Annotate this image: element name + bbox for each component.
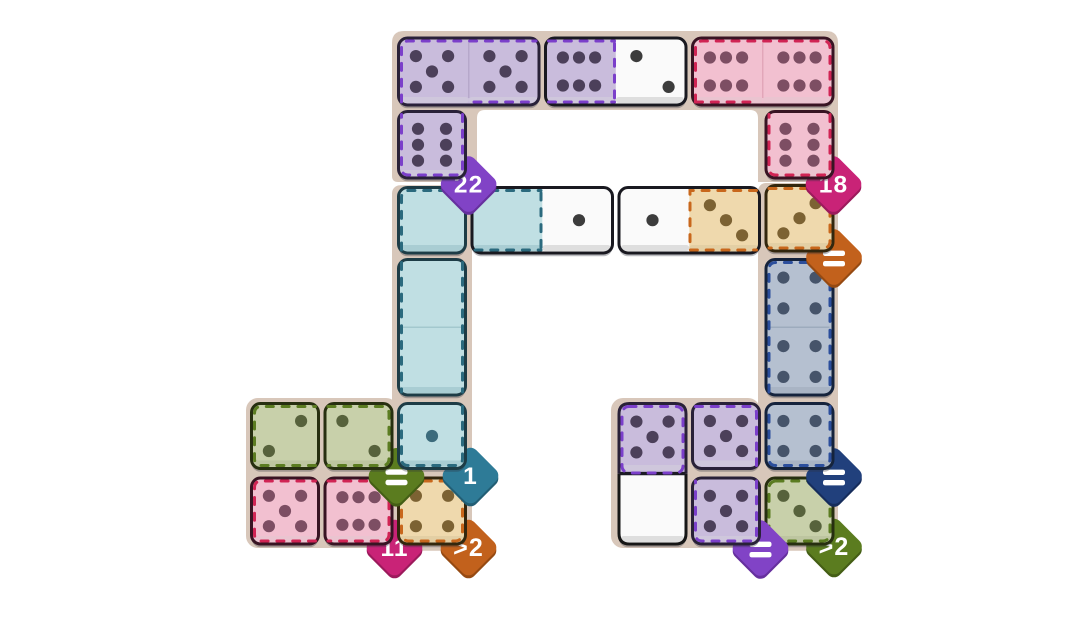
svg-text:1: 1	[463, 463, 478, 490]
